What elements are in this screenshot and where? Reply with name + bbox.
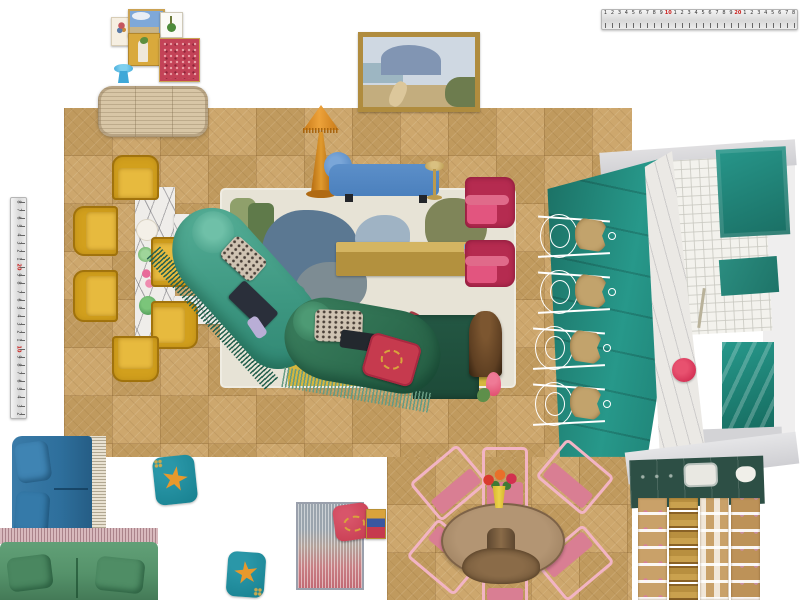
kitchen-photo-wrapped-unit-large xyxy=(722,342,774,434)
ruler-vertical[interactable]: 87654321209876543211098765432 xyxy=(10,197,27,419)
sofa-pillow-1 xyxy=(13,440,52,484)
stool-ring xyxy=(550,280,570,304)
gold-motif xyxy=(378,347,405,372)
stool-ring xyxy=(550,224,570,248)
chair-cushion xyxy=(118,338,153,369)
tulip-leaf xyxy=(477,388,490,402)
ruler-mark-4: 4 xyxy=(762,10,769,29)
bushes-shape xyxy=(445,77,475,107)
stool-seat xyxy=(575,273,608,309)
starfish-cushion-1[interactable] xyxy=(152,454,199,506)
pink-tulip-decor[interactable] xyxy=(477,372,503,406)
plan-sink xyxy=(683,462,718,487)
ruler-mark-8: 8 xyxy=(720,10,727,29)
gold-tiger-motif xyxy=(342,514,366,533)
rattan-sideboard[interactable] xyxy=(98,86,208,137)
moodboard-canvas: 123456789101234567892012345678 876543212… xyxy=(0,0,800,600)
ruler-mark-7: 7 xyxy=(783,10,790,29)
ruler-mark-6: 6 xyxy=(637,10,644,29)
stem-motif xyxy=(170,16,172,24)
ruler-mark-8: 8 xyxy=(651,10,658,29)
magenta-armchair-upper[interactable] xyxy=(465,177,515,228)
magenta-armchair-lower[interactable] xyxy=(465,240,515,287)
chair-cushion xyxy=(86,212,116,250)
armchair-seat xyxy=(467,202,497,224)
ruler-mark-20: 20 xyxy=(734,10,741,29)
plan-basin xyxy=(735,466,756,483)
mustard-chair-bottom[interactable] xyxy=(112,336,159,382)
blue-side-stool[interactable] xyxy=(114,64,133,83)
ruler-mark-4: 4 xyxy=(623,10,630,29)
cloud-shape xyxy=(132,12,150,20)
ruler-mark-6: 6 xyxy=(707,10,714,29)
side-table-stem xyxy=(433,169,436,195)
shelf-column-4 xyxy=(731,498,760,600)
gold-sprig xyxy=(154,459,163,468)
art-red-pattern[interactable] xyxy=(159,38,200,82)
ruler-mark-2: 2 xyxy=(748,10,755,29)
sofa-seam xyxy=(76,558,78,598)
stool-foot xyxy=(608,288,616,296)
wire-bar-stool-1[interactable] xyxy=(538,210,616,264)
sofa-seat-seam-1 xyxy=(54,488,88,490)
green-fruit-motif xyxy=(167,23,176,32)
burl-drinks-cabinet[interactable] xyxy=(469,311,502,377)
wire-bar-stool-2[interactable] xyxy=(538,266,616,320)
mustard-chair-left-upper[interactable] xyxy=(73,206,118,256)
stool-seat xyxy=(575,217,608,253)
plan-knobs xyxy=(636,473,680,481)
shelf-column-3 xyxy=(700,498,729,600)
mountain-shape xyxy=(381,45,441,75)
ruler-mark-4: 4 xyxy=(693,10,700,29)
chaise-foot-1 xyxy=(345,194,353,202)
gold-sprig xyxy=(254,588,263,597)
mini-artwork[interactable] xyxy=(366,509,386,539)
sofa-pillow-1 xyxy=(6,553,54,592)
ruler-mark-1: 1 xyxy=(672,10,679,29)
ruler-mark-3: 3 xyxy=(755,10,762,29)
wire-bar-stool-4[interactable] xyxy=(533,378,611,432)
ruler-mark-1: 1 xyxy=(602,10,609,29)
chair-seat xyxy=(487,588,523,600)
kitchen-photo-red-dot xyxy=(672,358,696,382)
armchair-seat xyxy=(467,263,497,283)
coastal-landscape-painting[interactable] xyxy=(358,32,480,112)
lamp-shade xyxy=(303,105,339,130)
kitchen-photo-wrapped-unit-small xyxy=(719,256,779,296)
ruler-mark-3: 3 xyxy=(616,10,623,29)
stool-base xyxy=(118,71,129,83)
kitchen-photo-upper-cabinet xyxy=(716,146,791,238)
wire-bar-stool-3[interactable] xyxy=(533,322,611,376)
kitchen-plan-shelving[interactable] xyxy=(638,498,760,600)
starfish-icon xyxy=(160,464,189,493)
ruler-mark-2: 2 xyxy=(11,410,26,418)
ruler-mark-7: 7 xyxy=(644,10,651,29)
ruler-mark-9: 9 xyxy=(727,10,734,29)
ruler-mark-1: 1 xyxy=(741,10,748,29)
botanical-motif xyxy=(117,22,126,34)
stool-ring xyxy=(545,392,565,416)
ruler-mark-2: 2 xyxy=(679,10,686,29)
shelf-column-2 xyxy=(669,498,698,600)
pattern-texture xyxy=(162,41,197,79)
mustard-chair-top[interactable] xyxy=(112,155,159,200)
mustard-chair-left-lower[interactable] xyxy=(73,270,118,322)
ruler-mark-6: 6 xyxy=(776,10,783,29)
chair-cushion xyxy=(118,168,153,198)
art-green-still-life[interactable] xyxy=(160,12,183,38)
chaise-body xyxy=(329,164,439,196)
ruler-mark-8: 8 xyxy=(790,10,797,29)
armchair-arm xyxy=(465,195,509,205)
sofa-pillow-2 xyxy=(94,556,145,595)
ruler-mark-3: 3 xyxy=(686,10,693,29)
ruler-horizontal[interactable]: 123456789101234567892012345678 xyxy=(601,9,798,30)
green-fringed-sofa[interactable] xyxy=(0,528,158,600)
ruler-mark-5: 5 xyxy=(630,10,637,29)
chair-cushion xyxy=(86,276,116,316)
shelf-column-1 xyxy=(638,498,667,600)
ruler-mark-5: 5 xyxy=(769,10,776,29)
ruler-mark-10: 10 xyxy=(665,10,672,29)
stool-ring xyxy=(545,336,565,360)
ruler-mark-9: 9 xyxy=(658,10,665,29)
table-scroll-base xyxy=(462,548,540,584)
stool-foot xyxy=(603,344,611,352)
side-table-base xyxy=(427,195,442,200)
stool-seat xyxy=(570,385,603,421)
armchair-arm xyxy=(465,256,509,266)
starfish-icon xyxy=(233,560,259,586)
stool-seat xyxy=(570,329,603,365)
ruler-mark-2: 2 xyxy=(609,10,616,29)
starfish-cushion-2[interactable] xyxy=(225,551,266,599)
art-gold-figure[interactable] xyxy=(128,33,160,66)
stool-foot xyxy=(608,232,616,240)
ruler-mark-5: 5 xyxy=(700,10,707,29)
brass-side-table[interactable] xyxy=(424,161,446,201)
ruler-mark-7: 7 xyxy=(714,10,721,29)
stool-foot xyxy=(603,400,611,408)
